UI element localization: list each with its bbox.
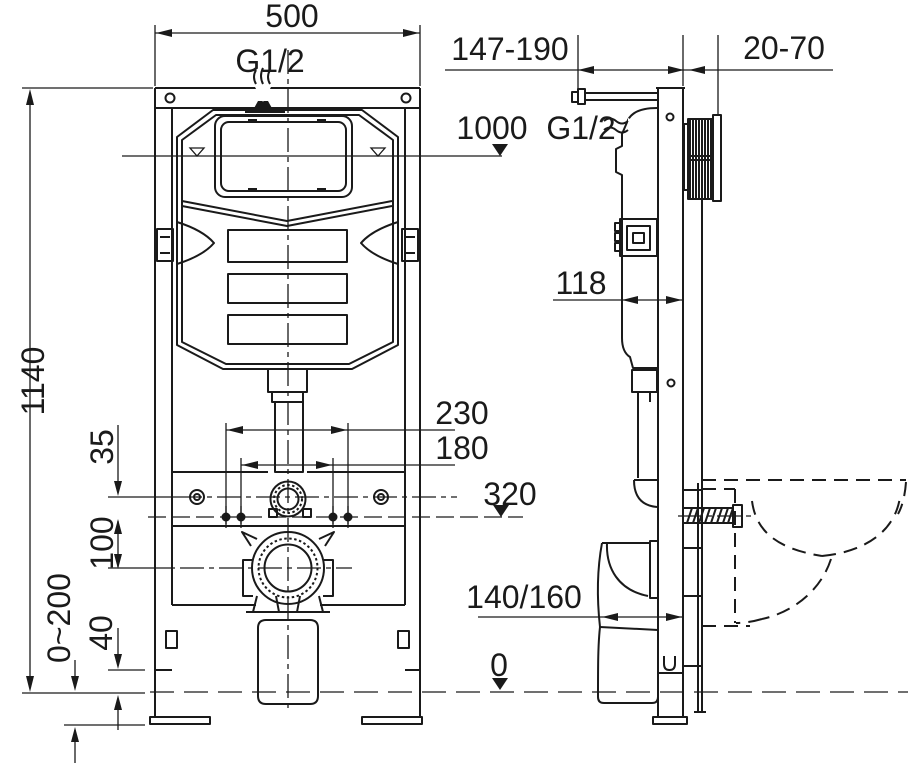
dim-outlet-level: 320: [483, 476, 536, 512]
front-view: [150, 68, 422, 724]
side-clip-left: [157, 229, 173, 261]
dim-floor-level: 0: [490, 647, 508, 683]
dim-rail-to-holes: 35: [84, 429, 120, 465]
wall-rail: [683, 199, 706, 712]
dim-frame-width: 500: [265, 0, 318, 34]
mounting-frame: [150, 88, 422, 724]
wall-bracket: [684, 115, 721, 201]
dim-frame-height: 1140: [15, 347, 51, 416]
label-inlet-front: G1/2: [235, 43, 304, 79]
dim-water-level: 1000: [456, 110, 527, 146]
side-view: [572, 88, 742, 724]
foot-plate-side: [653, 717, 687, 724]
dim-stud-inner: 180: [435, 430, 488, 466]
dim-finished-wall: 20-70: [743, 30, 825, 66]
toilet-bowl-outline: [702, 480, 906, 626]
frame-hole-left: [166, 94, 175, 103]
dim-mounting-depth: 147-190: [451, 31, 568, 67]
clamp-ear-left: [242, 532, 257, 546]
foot-plate-left: [150, 717, 210, 724]
label-inlet-side: G1/2: [546, 110, 615, 146]
dim-leg-adjustment: 0~200: [41, 573, 77, 663]
drawing-page: 500 G1/2 1140 230 180 35 100 0~200 40 14…: [0, 0, 910, 763]
cistern-side: [615, 108, 657, 368]
lower-clip-right: [398, 631, 409, 648]
dimension-annotations: 500 G1/2 1140 230 180 35 100 0~200 40 14…: [15, 0, 908, 763]
frame-hole-right: [402, 94, 411, 103]
water-level-mark: [371, 148, 385, 156]
dim-drain-size: 140/160: [466, 579, 582, 615]
fixture-rail: [190, 482, 388, 522]
frame-profile: [653, 88, 687, 724]
lower-clip-left: [166, 631, 177, 648]
dim-floor-offset: 40: [83, 615, 119, 651]
foot-plate-right: [362, 717, 422, 724]
elbow-socket: [650, 541, 658, 598]
dim-cistern-depth: 118: [555, 265, 606, 301]
flush-drain-side: [598, 370, 658, 703]
dim-holes-to-drain: 100: [84, 516, 120, 569]
inlet-arrow-icon: [255, 87, 271, 102]
water-level-mark: [190, 148, 204, 156]
leg-notch: [664, 656, 675, 670]
push-rod: [572, 89, 658, 104]
clamp-ear-right: [319, 532, 334, 546]
technical-drawing: 500 G1/2 1140 230 180 35 100 0~200 40 14…: [0, 0, 910, 763]
dim-stud-outer: 230: [435, 395, 488, 431]
